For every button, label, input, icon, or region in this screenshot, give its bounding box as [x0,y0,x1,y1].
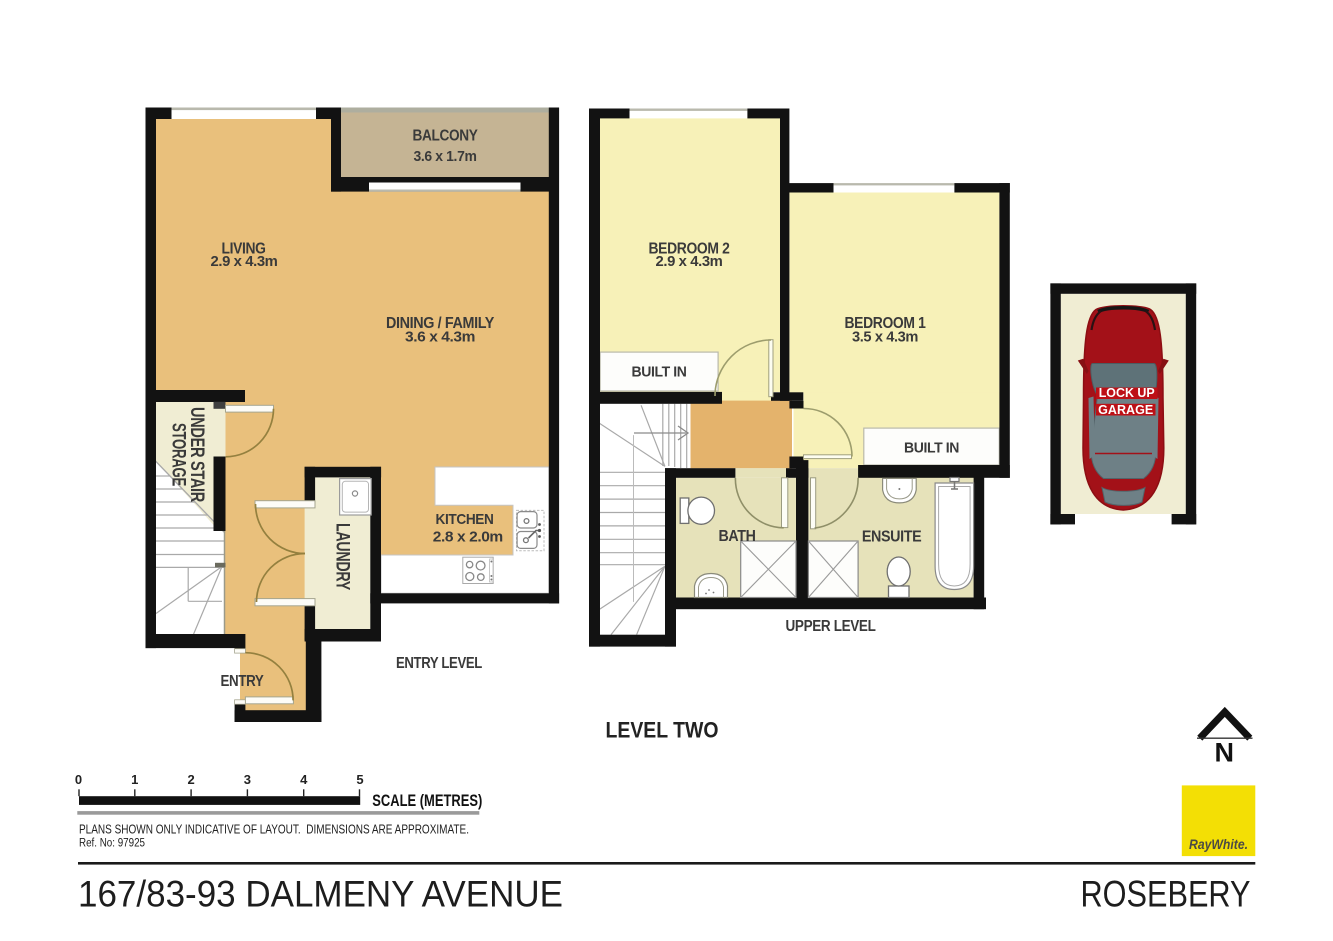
svg-text:5: 5 [356,772,363,787]
svg-text:2.8 x 2.0m: 2.8 x 2.0m [433,530,503,546]
svg-text:ROSEBERY: ROSEBERY [1081,874,1251,915]
svg-text:UPPER LEVEL: UPPER LEVEL [786,618,876,635]
svg-text:3.5 x 4.3m: 3.5 x 4.3m [852,329,918,346]
svg-text:Ref. No: 97925: Ref. No: 97925 [79,836,145,850]
svg-text:N: N [1215,738,1235,768]
svg-text:KITCHEN: KITCHEN [436,512,494,528]
svg-text:SCALE (METRES): SCALE (METRES) [372,791,482,810]
svg-text:PLANS SHOWN ONLY INDICATIVE OF: PLANS SHOWN ONLY INDICATIVE OF LAYOUT. D… [79,822,469,837]
svg-text:3.6 x 4.3m: 3.6 x 4.3m [405,329,475,346]
svg-text:0: 0 [75,772,82,787]
svg-text:ENSUITE: ENSUITE [862,529,922,546]
svg-text:ENTRY LEVEL: ENTRY LEVEL [396,655,482,672]
svg-text:LEVEL TWO: LEVEL TWO [606,718,719,743]
svg-text:2.9 x 4.3m: 2.9 x 4.3m [656,253,723,270]
svg-text:BALCONY: BALCONY [413,127,479,144]
svg-text:BATH: BATH [719,528,756,545]
svg-text:ENTRY: ENTRY [221,673,265,690]
svg-text:2.9 x 4.3m: 2.9 x 4.3m [211,253,278,270]
svg-text:BUILT IN: BUILT IN [632,365,687,381]
svg-text:3: 3 [244,772,251,787]
svg-text:LOCK UP: LOCK UP [1099,386,1155,400]
svg-text:GARAGE: GARAGE [1098,403,1153,417]
svg-text:RayWhite.: RayWhite. [1189,836,1248,852]
svg-text:167/83-93 DALMENY AVENUE: 167/83-93 DALMENY AVENUE [78,874,563,915]
svg-text:1: 1 [131,772,138,787]
svg-text:LAUNDRY: LAUNDRY [332,523,353,591]
svg-text:3.6 x 1.7m: 3.6 x 1.7m [414,148,477,165]
svg-text:4: 4 [300,772,308,787]
svg-text:BUILT IN: BUILT IN [904,441,959,457]
svg-text:2: 2 [187,772,194,787]
